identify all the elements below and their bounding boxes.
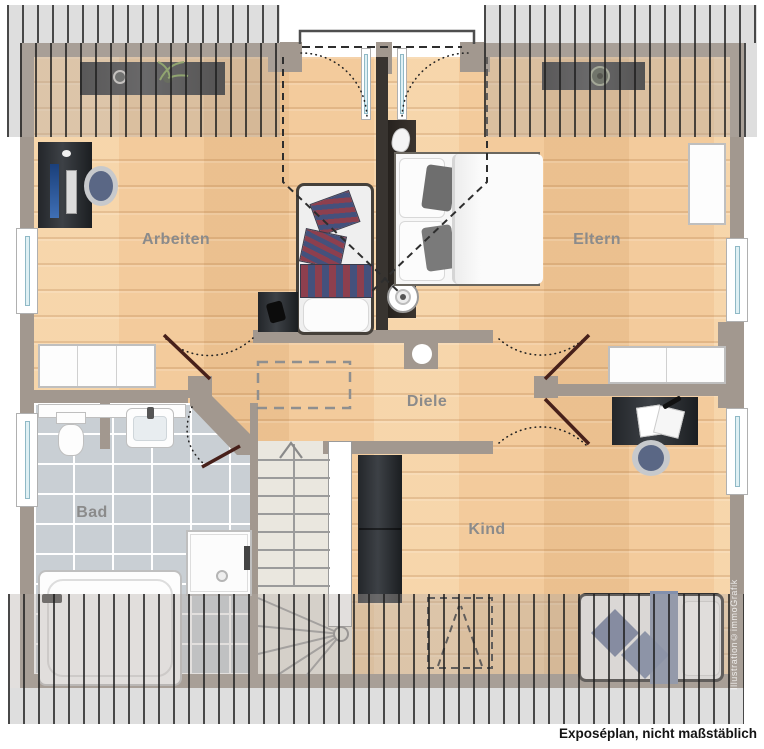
roof-hatch-right-strip	[744, 43, 757, 137]
room-label-diele: Diele	[407, 393, 447, 411]
balcony-door-left-swing	[301, 53, 367, 119]
dashed-ceiling-opening	[258, 362, 350, 408]
kind-door-leaf	[545, 399, 589, 444]
roof-hatch-overlay-top-left	[20, 43, 280, 137]
roof-hatch-left-strip	[7, 43, 20, 137]
roof-hatch-top-right	[484, 5, 757, 43]
roof-hatch-overlay-bottom	[8, 594, 744, 688]
roof-hatch-top-left	[7, 5, 280, 43]
stairs-up-arrow-icon	[280, 443, 302, 458]
eltern-door-leaf	[545, 335, 589, 379]
roof-hatch-overlay-top-right	[484, 43, 744, 137]
bad-door-leaf	[202, 446, 240, 467]
balcony-outline	[300, 31, 474, 44]
roof-hatch-bottom-band	[8, 688, 744, 724]
stair-treads	[258, 444, 330, 586]
dashed-slope-left	[283, 57, 400, 293]
watermark: Illustration©immoGrafik	[729, 578, 739, 690]
dashed-slope-right	[370, 57, 487, 293]
room-label-bad: Bad	[76, 504, 107, 522]
plan-caption: Exposéplan, nicht maßstäblich	[559, 726, 757, 741]
wall-bad-diagonal	[190, 390, 253, 455]
room-label-eltern: Eltern	[573, 231, 621, 249]
balcony-door-right-swing	[402, 53, 468, 119]
room-label-arbeiten: Arbeiten	[142, 231, 210, 249]
arbeiten-door-leaf	[164, 335, 210, 379]
floor-plan: Arbeiten Eltern Diele Bad Kind Exposépla…	[0, 0, 764, 749]
room-label-kind: Kind	[468, 521, 505, 539]
